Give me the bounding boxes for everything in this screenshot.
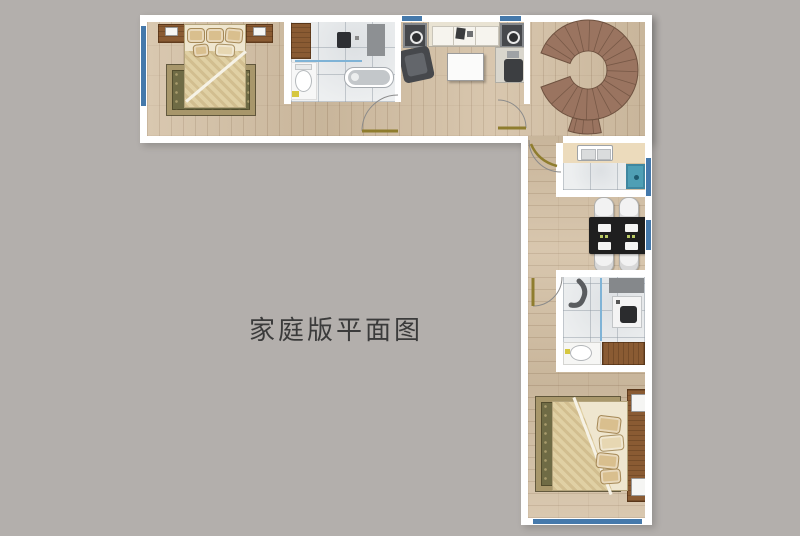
washing-machine (612, 296, 642, 328)
toilet-unit-button (355, 36, 359, 40)
kitchen-tile-floor (563, 163, 626, 190)
bathtub-drain (351, 73, 359, 81)
side-table-left (403, 23, 427, 48)
pillow (215, 43, 236, 57)
pillow (192, 43, 209, 58)
toilet-bowl (295, 70, 312, 92)
sofa-tray (455, 27, 465, 39)
table-decor-dot (627, 235, 630, 238)
window (646, 158, 651, 196)
nightstand-left-decor (165, 27, 178, 36)
soap-yellow (292, 91, 299, 97)
wall (521, 136, 528, 525)
sofa-cushion (475, 26, 499, 46)
bathroom2-counter-gray (609, 278, 644, 293)
armchair-cushion (404, 52, 428, 77)
lounge-chair-seat (504, 59, 523, 82)
floor-plan-canvas: 家庭版平面图 (0, 0, 800, 536)
pillow (596, 415, 622, 435)
table-decor-dot (600, 235, 603, 238)
wall (140, 15, 652, 22)
placemat (598, 224, 611, 232)
pillow (224, 27, 243, 44)
wall-interior (556, 143, 563, 193)
wall-interior (524, 22, 530, 104)
dining-table (589, 217, 647, 254)
side-table-right (500, 23, 524, 48)
window (500, 16, 521, 21)
soap-yellow (565, 349, 570, 354)
wall (645, 15, 652, 525)
toilet-unit-dark (337, 32, 351, 48)
bathroom1-cabinet (291, 23, 311, 59)
wall-interior (284, 22, 291, 104)
nightstand-decor (631, 394, 646, 412)
washer-door (620, 306, 637, 323)
bed-bedroom1 (184, 24, 246, 108)
wall-interior (556, 270, 563, 370)
sink-basin (581, 149, 596, 160)
window (402, 16, 422, 21)
nightstand-right-decor (253, 27, 266, 36)
bathroom2-wood-deck (602, 342, 645, 365)
stove-appliance (626, 164, 645, 189)
pillow (600, 468, 622, 484)
sink-basin (597, 149, 611, 160)
sofa-cushion (432, 26, 454, 46)
bathroom2-sink-basin (570, 345, 592, 361)
wall-interior (563, 136, 645, 143)
lounge-chair (495, 47, 525, 83)
wall-interior (556, 190, 645, 197)
wall (140, 136, 528, 143)
sofa-cushion-small (467, 31, 473, 37)
window (533, 519, 642, 524)
stove-knob (634, 175, 639, 180)
kitchen-sink (577, 145, 613, 161)
table-decor-dot (632, 235, 635, 238)
window (141, 26, 146, 106)
plan-title: 家庭版平面图 (249, 310, 423, 347)
pillow (598, 434, 624, 452)
window (646, 220, 651, 250)
bed-bedroom2 (552, 401, 628, 491)
pillow (595, 452, 620, 470)
table-decor-dot (605, 235, 608, 238)
wall-interior (395, 22, 401, 102)
wall-interior (556, 270, 645, 277)
nightstand-decor (631, 478, 646, 496)
armchair (398, 45, 435, 84)
washer-knob (616, 300, 620, 304)
placemat (625, 224, 638, 232)
wall-interior (556, 365, 645, 372)
placemat (625, 242, 638, 250)
pillow (187, 28, 205, 43)
lounge-chair-back (507, 51, 519, 58)
coffee-table (447, 53, 484, 81)
sofa (428, 21, 500, 47)
placemat (598, 242, 611, 250)
pillow (206, 28, 224, 43)
bath-mat-gray (367, 24, 385, 56)
